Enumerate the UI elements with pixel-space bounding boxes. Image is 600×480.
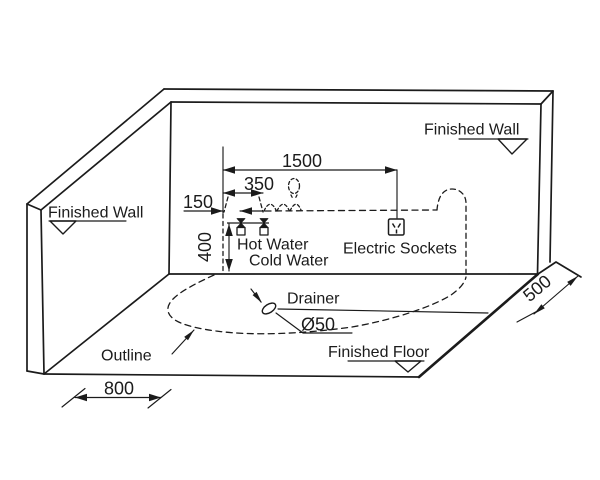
arrow-150-left-facing (240, 207, 252, 215)
dimension-arrowheads (75, 166, 578, 401)
diagram-drawing: Finished Wall Finished Wall Hot Water Co… (0, 0, 600, 480)
left-wall-top-inner (41, 102, 171, 210)
drain-hole (260, 301, 277, 316)
arrow-350-left (223, 189, 235, 197)
cold-water-tap-icon (260, 219, 268, 236)
right-wall-outer-edge (550, 91, 553, 262)
electric-socket-icon (389, 219, 405, 235)
electric-sockets-label: Electric Sockets (343, 241, 457, 258)
dim-400-value: 400 (195, 232, 215, 262)
right-wall-inner-edge (538, 104, 542, 274)
left-wall-top-cap (27, 204, 41, 210)
dim-1500-value: 1500 (282, 151, 322, 171)
arrow-1500-left (223, 166, 235, 174)
dim-150-value: 150 (183, 192, 213, 212)
finished-wall-left-label: Finished Wall (48, 205, 143, 222)
tub-left-slant (224, 197, 228, 212)
diagram-labels: Finished Wall Finished Wall Hot Water Co… (48, 122, 555, 399)
arrow-1500-right (385, 166, 397, 174)
finished-floor-label: Finished Floor (328, 344, 430, 361)
tub-jet-scallops (264, 204, 301, 211)
finished-wall-right-marker-icon (498, 139, 527, 154)
tub-right-slant (259, 197, 263, 212)
left-wall-inner-edge (41, 210, 44, 374)
socket-pins (393, 224, 401, 234)
left-wall-top-outer (27, 89, 164, 204)
installation-diagram: Finished Wall Finished Wall Hot Water Co… (0, 0, 600, 480)
mixer-silhouette-base (291, 195, 297, 198)
hot-water-label: Hot Water (237, 237, 309, 254)
finished-wall-right-label: Finished Wall (424, 122, 519, 139)
back-wall-top-inner (171, 102, 541, 104)
arrow-400-top (225, 224, 233, 236)
cold-tap-body (260, 228, 268, 236)
arrow-400-bottom (225, 259, 233, 271)
water-taps (227, 219, 269, 236)
corner-vertical-edge (169, 102, 171, 274)
right-wall-top-cap (541, 91, 553, 104)
tub-wall-headrest-hump (437, 189, 466, 273)
outline-label: Outline (101, 348, 152, 365)
dim-350-value: 350 (244, 174, 274, 194)
drain-diameter-label: Ø50 (301, 315, 335, 335)
arrow-800-right (149, 394, 161, 402)
mixer-silhouette-icon (289, 179, 300, 194)
floor-front-edge (44, 374, 419, 377)
dim-800-value: 800 (104, 379, 134, 399)
hot-tap-body (237, 228, 245, 236)
left-wall-bottom-edge (27, 371, 44, 374)
cold-water-label: Cold Water (249, 253, 329, 270)
back-wall-top-outer (164, 89, 553, 91)
drainer-label: Drainer (287, 291, 340, 308)
finished-floor-marker-icon (395, 361, 421, 372)
drainer-icon (260, 301, 277, 316)
hot-water-tap-icon (237, 219, 245, 236)
finished-wall-left-marker-icon (50, 221, 76, 234)
drainer-underline (278, 309, 488, 313)
